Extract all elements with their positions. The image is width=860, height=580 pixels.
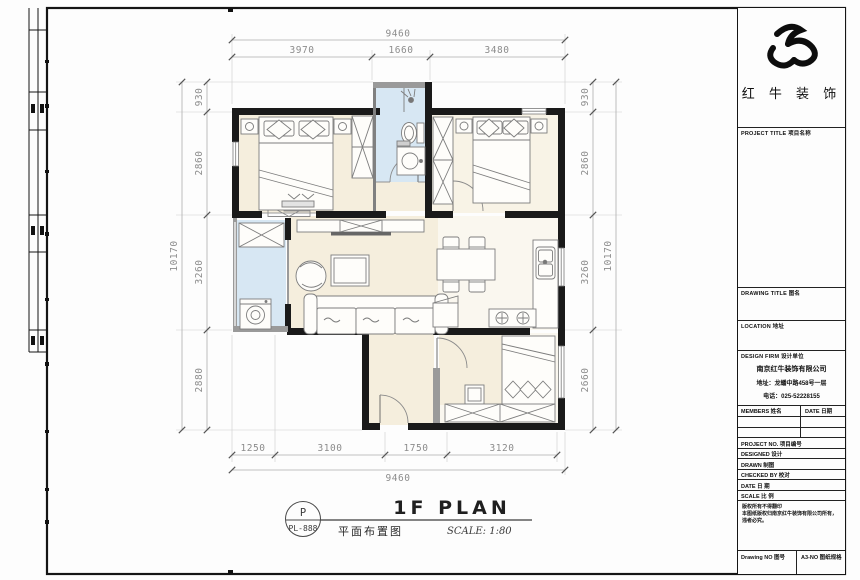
caption-title-en: 1F PLAN (393, 497, 510, 519)
washing-machine (240, 299, 271, 329)
title-block: 红 牛 装 饰 PROJECT TITLE 项目名称 DRAWING TITLE… (737, 8, 845, 574)
sofa (304, 294, 448, 334)
company-address: 地址：龙蟠中路458号一层 (738, 378, 845, 387)
kitchen-counter (533, 240, 558, 328)
members-date-table: MEMBERS 姓名 DATE 日期 (738, 405, 845, 437)
dimensions-right: 10170 930 2860 3260 2660 (580, 79, 619, 433)
dim-left-3: 3260 (194, 260, 205, 285)
wardrobe-right (433, 117, 453, 204)
dimensions-top: 9460 3970 1660 3480 (229, 29, 568, 61)
location-label: LOCATION 地址 (738, 321, 845, 330)
coffee-table (331, 255, 369, 286)
dim-left-4: 2880 (194, 368, 205, 393)
plan-caption: P PL-888 1F PLAN 平面布置图 SCALE: 1:80 (286, 497, 533, 538)
disclaimer-cell: 版权所有不得翻印 本图纸版权归南京红牛装饰有限公司所有， 违者必究。 (738, 500, 845, 550)
design-firm-label: DESIGN FIRM 设计单位 (738, 351, 845, 360)
wardrobe-bottom (445, 404, 555, 422)
disclaimer-line-3: 违者必究。 (738, 518, 845, 525)
design-firm-cell: DESIGN FIRM 设计单位 南京红牛装饰有限公司 地址：龙蟠中路458号一… (738, 350, 845, 405)
dim-left-total: 10170 (169, 240, 180, 271)
stool (465, 385, 484, 404)
row-project-no: PROJECT NO. 项目编号 (738, 437, 845, 448)
brand-name: 红 牛 装 饰 (738, 83, 845, 102)
armchair (296, 261, 326, 291)
drawing-title-label: DRAWING TITLE 图名 (738, 288, 845, 297)
company-name: 南京红牛装饰有限公司 (738, 364, 845, 374)
dim-top-2: 1660 (389, 45, 414, 56)
row-date: DATE 日 期 (738, 479, 845, 490)
drawing-title-cell: DRAWING TITLE 图名 (738, 287, 845, 320)
dim-top-3: 3480 (485, 45, 510, 56)
drawing-number-cell: Drawing NO 图号 A3-NO 图纸规格 (738, 550, 845, 574)
disclaimer-line-1: 版权所有不得翻印 (738, 501, 845, 511)
balcony-cabinet (239, 223, 284, 247)
project-title-label: PROJECT TITLE 项目名称 (738, 128, 845, 137)
dim-left-2: 2860 (194, 151, 205, 176)
dim-right-1: 930 (580, 88, 591, 107)
plan-canvas: 9460 3970 1660 3480 10170 930 2860 3260 … (0, 0, 860, 580)
date-col-header: DATE 日期 (802, 406, 832, 415)
caption-title-cn: 平面布置图 (338, 525, 403, 538)
row-designed: DESIGNED 设计 (738, 448, 845, 459)
dim-top-1: 3970 (290, 45, 315, 56)
dim-bottom-total: 9460 (386, 473, 411, 484)
caption-tag-code: PL-888 (289, 524, 318, 533)
bed-bottom (502, 336, 555, 407)
disclaimer-line-2: 本图纸版权归南京红牛装饰有限公司所有， (738, 511, 845, 518)
title-block-logo-cell: 红 牛 装 饰 (738, 8, 845, 127)
dim-top-total: 9460 (386, 29, 411, 40)
drawing-sheet: 9460 3970 1660 3480 10170 930 2860 3260 … (0, 0, 860, 580)
dim-right-4: 2660 (580, 368, 591, 393)
dim-right-2: 2860 (580, 151, 591, 176)
floor-corridor (376, 182, 425, 211)
project-title-cell: PROJECT TITLE 项目名称 (738, 127, 845, 287)
brand-logo-icon (757, 20, 827, 76)
row-scale: SCALE 比 例 (738, 490, 845, 501)
dim-right-total: 10170 (603, 240, 614, 271)
dimensions-left: 10170 930 2860 3260 2880 (169, 79, 210, 433)
dim-bottom-2: 3100 (318, 443, 343, 454)
dim-bottom-1: 1250 (241, 443, 266, 454)
dim-bottom-3: 1750 (404, 443, 429, 454)
drawing-no-label: Drawing NO 图号 (738, 552, 785, 561)
row-drawn: DRAWN 制图 (738, 458, 845, 469)
caption-tag-letter: P (300, 507, 306, 519)
dim-right-3: 3260 (580, 260, 591, 285)
members-col-header: MEMBERS 姓名 (738, 406, 782, 415)
binding-strip (29, 8, 47, 352)
floor-entry-hall (368, 333, 434, 425)
row-checked: CHECKED BY 校对 (738, 469, 845, 480)
dim-left-1: 930 (194, 88, 205, 107)
stove (489, 309, 536, 327)
company-phone: 电话：025-52228155 (738, 391, 845, 400)
sheet-no-label: A3-NO 图纸规格 (798, 552, 842, 561)
wardrobe-left (352, 116, 373, 178)
location-cell: LOCATION 地址 (738, 320, 845, 350)
dimensions-bottom: 1250 3100 1750 3120 9460 (229, 443, 568, 484)
caption-scale: SCALE: 1:80 (447, 526, 512, 537)
dim-bottom-4: 3120 (490, 443, 515, 454)
